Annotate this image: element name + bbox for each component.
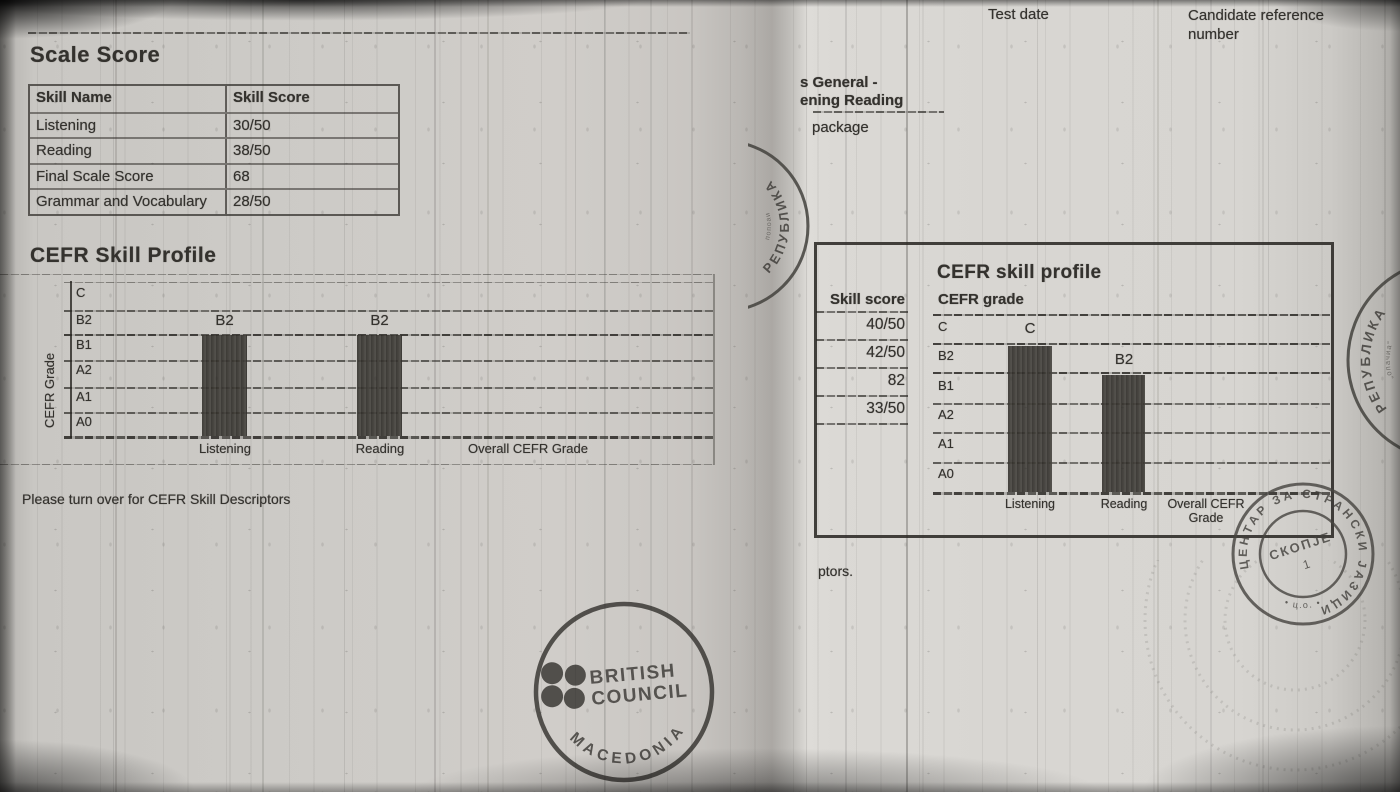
right-page: Test date Candidate reference number s G…: [0, 0, 1400, 792]
edge-stamp: РЕПУБЛИКА „опачиа“: [1338, 258, 1400, 463]
skill-score-value: 42/50: [810, 344, 905, 362]
category-label-reading: Reading: [1095, 497, 1153, 511]
grade-tick: A1: [938, 436, 954, 451]
skopje-center-number: 1: [1301, 557, 1312, 572]
skill-score-value: 33/50: [810, 400, 905, 418]
gridline: [933, 314, 1330, 316]
svg-text:„опачиа“: „опачиа“: [1383, 339, 1395, 380]
score-row-line: [816, 395, 908, 397]
test-date-label: Test date: [988, 6, 1049, 23]
gridline: [933, 372, 1330, 374]
bar-grade-label: C: [1005, 320, 1055, 337]
candidate-ref-label: Candidate reference number: [1188, 6, 1336, 44]
skopje-center-city: СКОПЈЕ: [1267, 529, 1333, 563]
skopje-stamp: ЦЕНТАР ЗА СТРАНСКИ ЈАЗИЦИ • ц.о. • СКОПЈ…: [1218, 469, 1388, 639]
grade-tick: C: [938, 319, 947, 334]
bar-grade-label: B2: [1099, 351, 1149, 368]
fold-stamp-small-text: попоаи: [764, 211, 773, 241]
cefr-grade-header: CEFR grade: [938, 291, 1024, 308]
scanned-score-report: Scale Score Skill Name Skill Score Liste…: [0, 0, 1400, 792]
grade-tick: A2: [938, 407, 954, 422]
product-name-line3: package: [812, 119, 869, 136]
bar-reading: [1102, 375, 1145, 492]
score-row-line: [816, 367, 908, 369]
bar-listening: [1008, 346, 1052, 492]
skill-score-header: Skill score: [810, 291, 905, 308]
skopje-bottom-text: • ц.о. •: [1283, 597, 1322, 610]
skill-score-value: 82: [810, 372, 905, 390]
fold-stamp-arc-text: РЕПУБЛИКА: [760, 176, 792, 276]
svg-text:• ц.о. •: • ц.о. •: [1283, 597, 1322, 610]
score-row-line: [816, 423, 908, 425]
category-label-listening: Listening: [1000, 497, 1060, 511]
product-name-line2: ening Reading: [800, 92, 903, 109]
svg-text:попоаи: попоаи: [764, 211, 773, 241]
grade-tick: B1: [938, 378, 954, 393]
edge-stamp-small-text: „опачиа“: [1383, 339, 1395, 380]
grade-tick: A0: [938, 466, 954, 481]
descriptors-fragment: ptors.: [818, 563, 853, 579]
product-underline: [813, 111, 944, 113]
score-row-line: [816, 311, 908, 313]
right-profile-heading: CEFR skill profile: [937, 262, 1102, 284]
score-row-line: [816, 339, 908, 341]
svg-text:РЕПУБЛИКА: РЕПУБЛИКА: [760, 176, 792, 276]
grade-tick: B2: [938, 348, 954, 363]
fold-stamp: РЕПУБЛИКА попоаи: [748, 138, 812, 324]
product-name-line1: s General -: [800, 74, 878, 91]
skill-score-value: 40/50: [810, 316, 905, 334]
edge-stamp-arc-text: РЕПУБЛИКА: [1358, 304, 1390, 416]
svg-text:РЕПУБЛИКА: РЕПУБЛИКА: [1358, 304, 1390, 416]
gridline: [933, 343, 1330, 345]
